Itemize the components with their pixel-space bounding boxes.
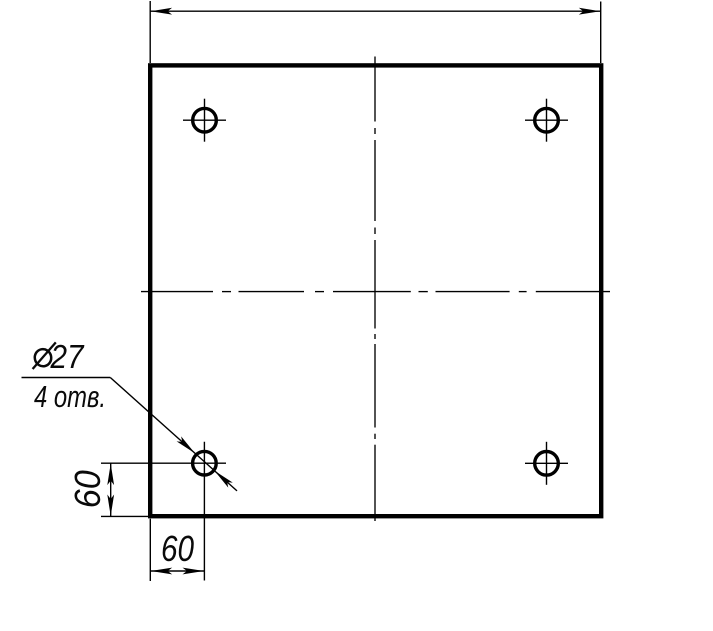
svg-text:4 отв.: 4 отв. <box>34 379 106 414</box>
svg-text:60: 60 <box>67 470 108 508</box>
svg-text:27: 27 <box>50 338 85 375</box>
svg-text:60: 60 <box>161 528 194 569</box>
